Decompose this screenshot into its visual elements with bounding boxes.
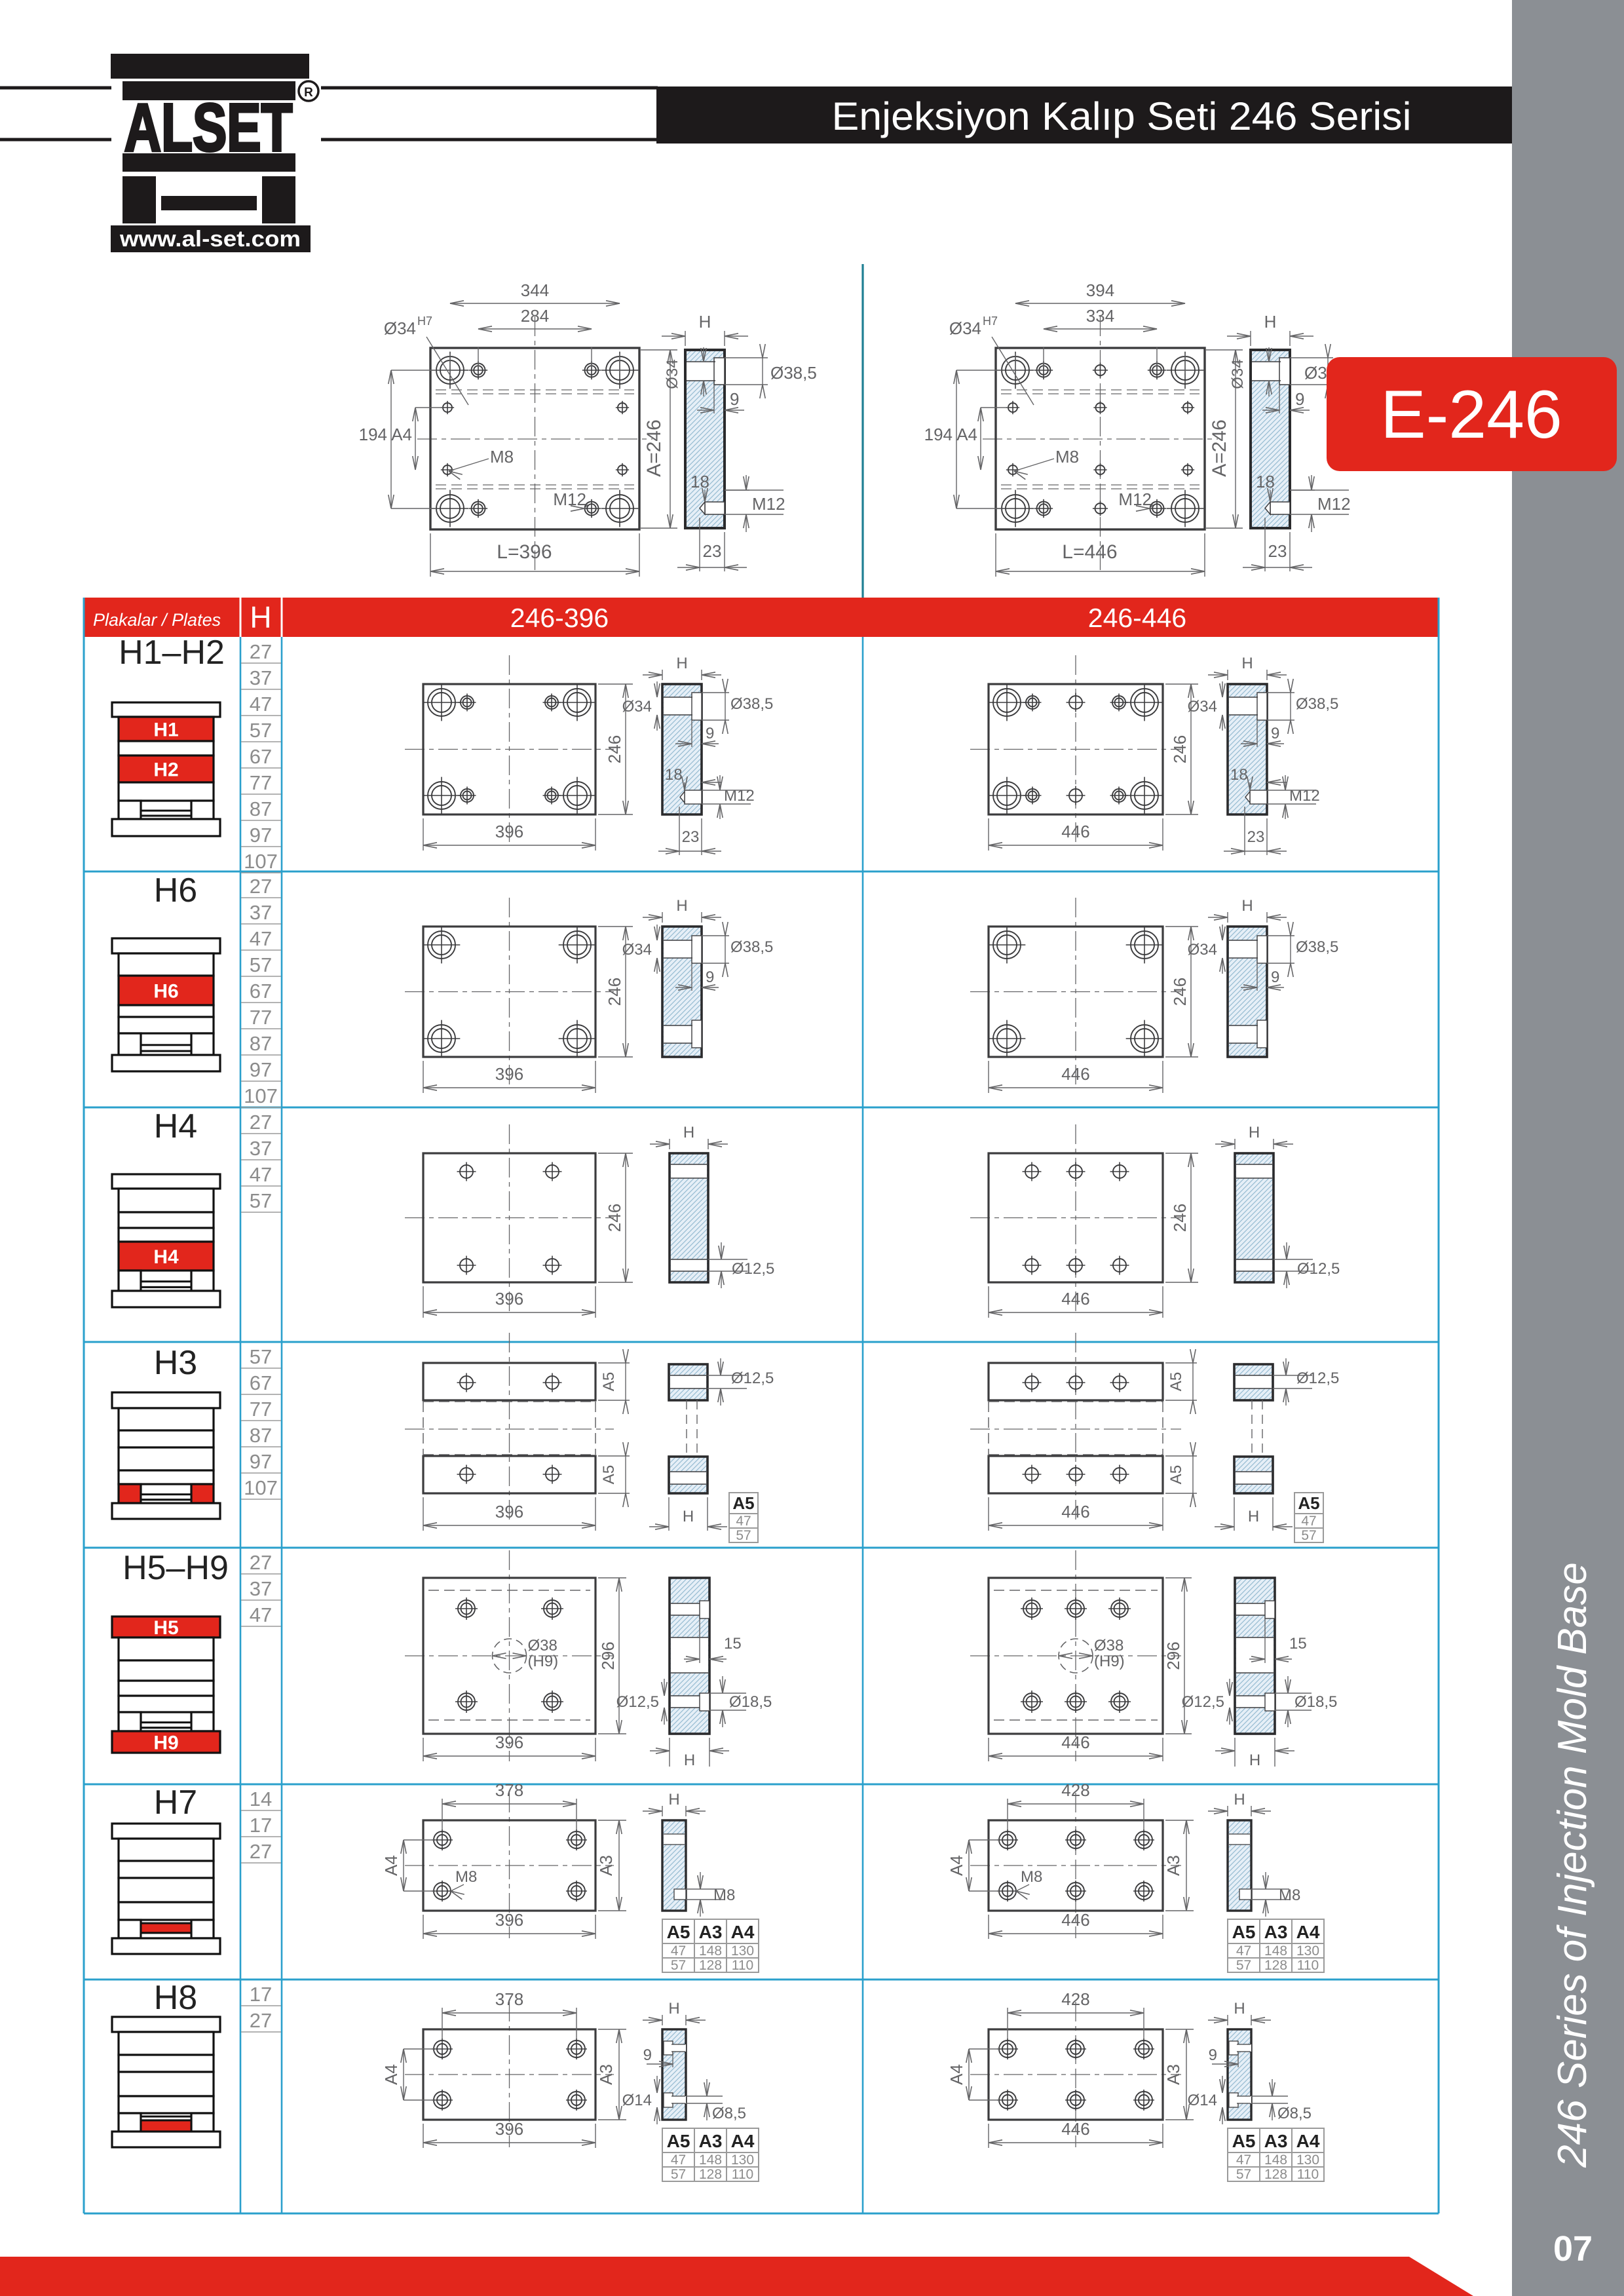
svg-text:47: 47	[250, 927, 272, 950]
svg-text:L=: L=	[497, 541, 519, 563]
svg-text:H: H	[668, 1791, 679, 1808]
svg-text:97: 97	[250, 1058, 272, 1081]
svg-text:Ø38,5: Ø38,5	[1296, 938, 1338, 956]
svg-text:M12: M12	[1118, 489, 1152, 509]
svg-text:396: 396	[495, 1910, 523, 1930]
svg-text:H: H	[1249, 1124, 1260, 1141]
svg-text:446: 446	[1061, 1289, 1089, 1309]
svg-text:67: 67	[250, 980, 272, 1003]
svg-text:A3: A3	[699, 1922, 723, 1942]
svg-text:H: H	[676, 897, 687, 915]
svg-text:378: 378	[495, 1780, 523, 1800]
svg-text:57: 57	[250, 1345, 272, 1368]
svg-text:A4: A4	[731, 1922, 755, 1942]
svg-text:A3: A3	[1264, 2131, 1288, 2151]
svg-text:18: 18	[1256, 472, 1275, 491]
svg-text:Ø12,5: Ø12,5	[1296, 1369, 1339, 1387]
svg-text:A3: A3	[1163, 1855, 1183, 1876]
svg-text:57: 57	[250, 953, 272, 976]
svg-text:446: 446	[1061, 1502, 1089, 1521]
svg-text:57: 57	[1301, 1528, 1316, 1543]
svg-text:A3: A3	[596, 1855, 616, 1876]
svg-text:H: H	[699, 312, 711, 332]
svg-text:H: H	[676, 655, 687, 672]
svg-text:H: H	[1234, 2000, 1245, 2018]
svg-text:148: 148	[699, 2152, 722, 2168]
svg-text:27: 27	[250, 875, 272, 898]
svg-text:23: 23	[1247, 828, 1265, 846]
svg-text:A5: A5	[667, 2131, 690, 2151]
svg-text:A5: A5	[1298, 1493, 1319, 1513]
svg-text:H8: H8	[154, 1979, 197, 2017]
svg-text:37: 37	[250, 1137, 272, 1160]
svg-text:97: 97	[250, 824, 272, 847]
svg-text:A5: A5	[1167, 1465, 1185, 1484]
svg-text:18: 18	[665, 766, 683, 784]
svg-text:H: H	[1241, 897, 1253, 915]
svg-text:67: 67	[250, 745, 272, 768]
svg-text:Ø38: Ø38	[528, 1637, 557, 1655]
svg-text:Ø34: Ø34	[622, 698, 652, 716]
svg-text:9: 9	[1271, 725, 1279, 742]
svg-text:H9: H9	[153, 1732, 178, 1754]
svg-text:Ø34: Ø34	[1188, 698, 1217, 716]
svg-text:A3: A3	[699, 2131, 723, 2151]
svg-text:H: H	[1241, 655, 1253, 672]
svg-text:47: 47	[250, 693, 272, 716]
svg-text:Ø38,5: Ø38,5	[730, 938, 773, 956]
svg-text:396: 396	[519, 541, 552, 563]
svg-text:Ø34: Ø34	[384, 318, 416, 338]
svg-text:Ø38,5: Ø38,5	[770, 363, 817, 383]
svg-text:A5: A5	[1167, 1372, 1185, 1391]
svg-text:396: 396	[495, 1502, 523, 1521]
svg-text:446: 446	[1061, 822, 1089, 841]
svg-text:H1: H1	[153, 719, 178, 741]
svg-text:446: 446	[1085, 541, 1118, 563]
svg-text:334: 334	[1086, 306, 1114, 326]
svg-text:9: 9	[643, 2046, 652, 2064]
svg-text:9: 9	[706, 968, 714, 986]
svg-text:27: 27	[250, 1551, 272, 1574]
svg-text:396: 396	[495, 1289, 523, 1309]
svg-text:M8: M8	[1021, 1868, 1042, 1886]
svg-text:47: 47	[671, 2152, 686, 2168]
svg-text:148: 148	[699, 1943, 722, 1959]
svg-text:77: 77	[250, 1006, 272, 1029]
svg-text:17: 17	[250, 1983, 272, 2006]
svg-text:246-446: 246-446	[1088, 603, 1186, 633]
svg-text:246 Series of Injection Mold B: 246 Series of Injection Mold Base	[1550, 1562, 1595, 2168]
svg-text:R: R	[304, 86, 313, 100]
svg-text:246: 246	[1170, 978, 1190, 1006]
svg-text:97: 97	[250, 1450, 272, 1473]
svg-text:A5: A5	[600, 1372, 618, 1391]
svg-text:H6: H6	[153, 981, 178, 1003]
svg-text:H7: H7	[417, 315, 432, 328]
svg-text:128: 128	[1264, 2167, 1287, 2182]
svg-text:M12: M12	[724, 787, 755, 805]
svg-text:57: 57	[671, 2167, 686, 2182]
svg-text:378: 378	[495, 1989, 523, 2009]
svg-text:57: 57	[1236, 2167, 1251, 2182]
svg-text:47: 47	[1236, 1943, 1251, 1959]
svg-text:Ø38,5: Ø38,5	[1296, 695, 1338, 713]
svg-text:47: 47	[736, 1514, 751, 1529]
svg-text:17: 17	[250, 1814, 272, 1837]
svg-text:246: 246	[1170, 1204, 1190, 1232]
svg-text:A=246: A=246	[643, 419, 665, 477]
svg-text:47: 47	[250, 1163, 272, 1186]
svg-text:M12: M12	[1317, 494, 1351, 514]
svg-text:H: H	[683, 1124, 694, 1141]
svg-text:396: 396	[495, 2119, 523, 2139]
svg-text:130: 130	[731, 2152, 754, 2168]
svg-text:87: 87	[250, 1424, 272, 1447]
svg-text:23: 23	[682, 828, 700, 846]
svg-text:246: 246	[605, 978, 624, 1006]
svg-text:446: 446	[1061, 1732, 1089, 1752]
svg-text:A4: A4	[956, 425, 977, 444]
svg-text:Ø18,5: Ø18,5	[729, 1693, 772, 1711]
svg-text:128: 128	[699, 1958, 722, 1973]
svg-text:M8: M8	[455, 1868, 477, 1886]
svg-text:47: 47	[1301, 1514, 1316, 1529]
svg-text:M12: M12	[1289, 787, 1320, 805]
svg-text:446: 446	[1061, 1064, 1089, 1084]
svg-text:9: 9	[1295, 389, 1304, 409]
svg-text:H: H	[1248, 1508, 1259, 1525]
svg-text:A5: A5	[1232, 1922, 1256, 1942]
svg-text:Ø34: Ø34	[1229, 359, 1247, 389]
svg-text:27: 27	[250, 1840, 272, 1863]
svg-text:27: 27	[250, 2009, 272, 2032]
svg-text:87: 87	[250, 797, 272, 820]
svg-text:428: 428	[1061, 1989, 1089, 2009]
svg-text:M8: M8	[1279, 1886, 1300, 1904]
svg-text:H: H	[1249, 1751, 1260, 1769]
svg-text:446: 446	[1061, 2119, 1089, 2139]
svg-text:H7: H7	[154, 1784, 197, 1822]
svg-text:Ø8,5: Ø8,5	[1277, 2105, 1312, 2122]
svg-text:Ø14: Ø14	[1188, 2092, 1217, 2109]
svg-text:194: 194	[359, 425, 387, 444]
svg-text:148: 148	[1264, 1943, 1287, 1959]
svg-text:A4: A4	[391, 425, 412, 444]
svg-text:110: 110	[1297, 1958, 1319, 1973]
svg-text:A5: A5	[1232, 2131, 1256, 2151]
svg-text:(H9): (H9)	[1094, 1653, 1125, 1670]
svg-text:37: 37	[250, 666, 272, 689]
svg-text:H5–H9: H5–H9	[123, 1549, 229, 1587]
svg-text:284: 284	[521, 306, 549, 326]
svg-text:A4: A4	[381, 1855, 401, 1876]
svg-text:www.al-set.com: www.al-set.com	[119, 227, 301, 252]
svg-text:Ø38: Ø38	[1094, 1637, 1124, 1655]
svg-text:194: 194	[924, 425, 953, 444]
svg-text:H: H	[683, 1508, 694, 1525]
svg-text:H2: H2	[153, 759, 178, 781]
svg-text:Ø12,5: Ø12,5	[732, 1260, 774, 1278]
svg-text:H: H	[1234, 1791, 1245, 1808]
svg-text:Ø12,5: Ø12,5	[731, 1369, 774, 1387]
svg-text:296: 296	[1163, 1641, 1183, 1670]
svg-text:H6: H6	[154, 871, 197, 909]
svg-text:110: 110	[732, 2167, 753, 2182]
svg-text:446: 446	[1061, 1910, 1089, 1930]
svg-text:110: 110	[1297, 2167, 1319, 2182]
svg-text:14: 14	[250, 1788, 272, 1810]
svg-text:M8: M8	[1055, 447, 1079, 467]
svg-text:M12: M12	[752, 494, 785, 514]
svg-text:246: 246	[605, 735, 624, 763]
svg-text:47: 47	[671, 1943, 686, 1959]
svg-text:H: H	[1264, 312, 1277, 332]
svg-text:A3: A3	[1264, 1922, 1288, 1942]
svg-text:H: H	[668, 2000, 679, 2018]
svg-text:396: 396	[495, 822, 523, 841]
svg-text:394: 394	[1086, 280, 1114, 300]
svg-text:27: 27	[250, 1111, 272, 1134]
svg-text:A5: A5	[667, 1922, 690, 1942]
svg-text:15: 15	[1289, 1635, 1307, 1653]
svg-text:H3: H3	[154, 1344, 197, 1382]
svg-text:Enjeksiyon Kalıp Seti 246 Seri: Enjeksiyon Kalıp Seti 246 Serisi	[832, 94, 1412, 138]
svg-text:37: 37	[250, 1577, 272, 1600]
svg-text:M8: M8	[713, 1886, 735, 1904]
svg-text:77: 77	[250, 771, 272, 794]
svg-text:Ø18,5: Ø18,5	[1294, 1693, 1337, 1711]
svg-text:A5: A5	[732, 1493, 754, 1513]
svg-text:Ø12,5: Ø12,5	[616, 1693, 659, 1711]
svg-text:Ø14: Ø14	[622, 2092, 652, 2109]
svg-text:A=246: A=246	[1209, 419, 1230, 477]
svg-text:A3: A3	[596, 2064, 616, 2085]
svg-text:344: 344	[521, 280, 549, 300]
svg-text:07: 07	[1553, 2229, 1593, 2268]
svg-text:M8: M8	[490, 447, 514, 467]
svg-text:L=: L=	[1062, 541, 1084, 563]
svg-text:Ø34: Ø34	[664, 359, 681, 389]
svg-text:Ø34: Ø34	[1188, 941, 1217, 959]
svg-text:37: 37	[250, 901, 272, 924]
svg-text:67: 67	[250, 1371, 272, 1394]
svg-text:H4: H4	[154, 1107, 197, 1145]
svg-text:57: 57	[250, 719, 272, 742]
svg-text:A4: A4	[947, 1855, 966, 1876]
svg-text:396: 396	[495, 1064, 523, 1084]
svg-text:H7: H7	[983, 315, 998, 328]
svg-text:128: 128	[699, 2167, 722, 2182]
svg-text:57: 57	[736, 1528, 751, 1543]
svg-text:Ø8,5: Ø8,5	[712, 2105, 746, 2122]
svg-text:148: 148	[1264, 2152, 1287, 2168]
svg-text:110: 110	[732, 1958, 753, 1973]
svg-text:246: 246	[605, 1204, 624, 1232]
svg-text:246-396: 246-396	[510, 603, 609, 633]
svg-text:130: 130	[731, 1943, 754, 1959]
svg-text:A4: A4	[947, 2064, 966, 2085]
svg-text:130: 130	[1296, 2152, 1319, 2168]
svg-text:M12: M12	[553, 489, 586, 509]
svg-text:15: 15	[724, 1635, 742, 1653]
svg-text:47: 47	[1236, 2152, 1251, 2168]
svg-text:87: 87	[250, 1032, 272, 1055]
svg-text:(H9): (H9)	[528, 1653, 559, 1670]
svg-text:130: 130	[1296, 1943, 1319, 1959]
svg-text:Ø38,5: Ø38,5	[730, 695, 773, 713]
svg-text:57: 57	[250, 1189, 272, 1212]
svg-text:107: 107	[244, 1084, 278, 1107]
svg-text:57: 57	[1236, 1958, 1251, 1973]
svg-text:H4: H4	[153, 1246, 179, 1268]
svg-text:Ø34: Ø34	[622, 941, 652, 959]
svg-text:428: 428	[1061, 1780, 1089, 1800]
svg-text:57: 57	[671, 1958, 686, 1973]
svg-text:9: 9	[706, 725, 714, 742]
svg-text:27: 27	[250, 640, 272, 663]
svg-text:A4: A4	[381, 2064, 401, 2085]
svg-text:H1–H2: H1–H2	[119, 634, 225, 672]
svg-text:A4: A4	[1296, 1922, 1320, 1942]
svg-text:Ø34: Ø34	[949, 318, 981, 338]
svg-text:Ø12,5: Ø12,5	[1182, 1693, 1224, 1711]
svg-text:47: 47	[250, 1603, 272, 1626]
svg-text:A4: A4	[731, 2131, 755, 2151]
svg-text:H5: H5	[153, 1617, 178, 1639]
svg-text:77: 77	[250, 1398, 272, 1421]
svg-text:Plakalar / Plates: Plakalar / Plates	[93, 610, 221, 630]
svg-text:H: H	[250, 600, 271, 634]
svg-text:107: 107	[244, 850, 278, 873]
svg-text:H: H	[684, 1751, 695, 1769]
svg-text:9: 9	[730, 389, 739, 409]
svg-text:E-246: E-246	[1380, 377, 1562, 453]
svg-text:23: 23	[1268, 541, 1287, 561]
svg-text:A3: A3	[1163, 2064, 1183, 2085]
svg-text:296: 296	[598, 1641, 618, 1670]
svg-text:23: 23	[703, 541, 722, 561]
svg-text:128: 128	[1264, 1958, 1287, 1973]
svg-text:9: 9	[1271, 968, 1279, 986]
svg-text:9: 9	[1209, 2046, 1217, 2064]
svg-text:A4: A4	[1296, 2131, 1320, 2151]
svg-text:246: 246	[1170, 735, 1190, 763]
svg-text:A5: A5	[600, 1465, 618, 1484]
svg-text:107: 107	[244, 1476, 278, 1499]
svg-text:18: 18	[1230, 766, 1248, 784]
svg-text:Ø12,5: Ø12,5	[1297, 1260, 1340, 1278]
svg-text:18: 18	[690, 472, 709, 491]
svg-text:396: 396	[495, 1732, 523, 1752]
